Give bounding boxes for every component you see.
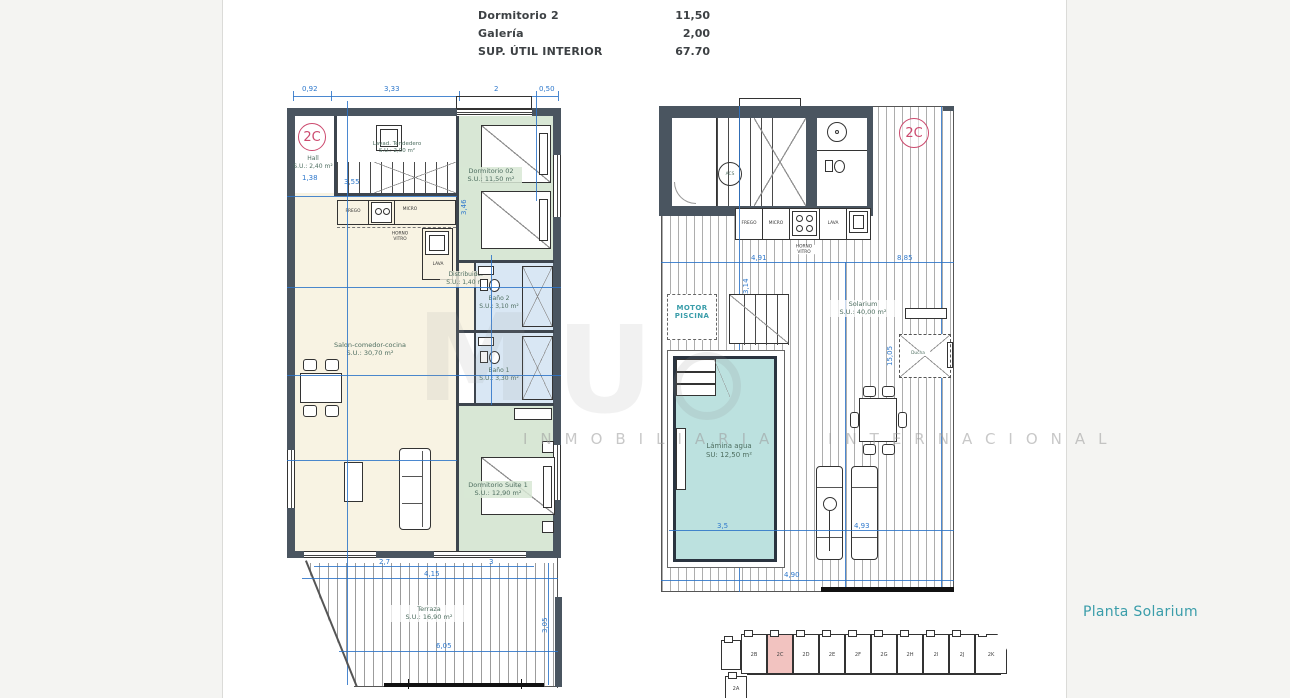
wall-bar: [821, 587, 954, 592]
room-name: Hall: [290, 155, 336, 163]
dimension-line: [661, 580, 954, 581]
solarium-stairs: [729, 294, 789, 344]
counter-divider: [394, 200, 395, 225]
room-area: S.U.: 11,50 m²: [460, 175, 522, 183]
unit-label: 2I: [926, 638, 946, 672]
counter-divider: [789, 208, 790, 240]
shower-head: [827, 122, 847, 142]
sofa-cushion: [402, 476, 422, 477]
oven-door: [429, 235, 445, 251]
wall-segment: [456, 330, 554, 333]
unit-label: 2H: [900, 638, 920, 672]
unit-label: 2G: [874, 638, 894, 672]
pool-step-corner: [714, 359, 730, 397]
basin: [853, 215, 864, 229]
keyplan-edge-cell: [721, 640, 741, 670]
dimension-label: 4,15: [424, 571, 440, 578]
partition: [817, 150, 867, 151]
dimension-tick: [558, 91, 559, 101]
counter-divider: [762, 208, 763, 240]
roof-tab: [456, 96, 532, 109]
pool-step: [676, 372, 716, 384]
pillow: [543, 466, 552, 508]
summary-row: SUP. ÚTIL INTERIOR 67.70: [478, 42, 710, 60]
room-name: Lámina agua: [683, 442, 775, 451]
partition: [716, 118, 717, 206]
parasol: [823, 497, 837, 511]
sun-lounger: [816, 466, 843, 560]
appliance-label: LAVA: [429, 262, 448, 267]
wall-segment: [555, 597, 562, 687]
toilet: [834, 160, 845, 173]
diagonal: [374, 162, 456, 193]
room-name: Solarium: [827, 300, 899, 308]
diagonal: [730, 295, 788, 343]
nightstand: [542, 521, 554, 533]
room-label-solarium: Solarium S.U.: 40,00 m²: [827, 300, 899, 317]
chair: [325, 405, 339, 417]
room-name: Dormitorio Suite 1: [464, 481, 532, 489]
wall-segment: [456, 260, 554, 263]
window: [287, 450, 295, 508]
toilet-tank: [480, 279, 488, 291]
dimension-label: 3,33: [384, 86, 400, 93]
dimension-label: 3: [489, 559, 493, 566]
diagonal: [523, 337, 552, 399]
pool-step: [676, 359, 716, 372]
unit-label: 2K: [978, 638, 1004, 672]
room-name: Dormitorio 02: [460, 167, 522, 175]
keyplan-unit-2E[interactable]: 2E: [819, 634, 845, 674]
summary-label: Dormitorio 2: [478, 9, 648, 22]
dimension-line: [669, 530, 954, 531]
bench: [905, 308, 947, 319]
stair-cross: [754, 118, 806, 206]
label-line: MOTOR: [667, 304, 717, 312]
dimension-label: 2,7: [379, 559, 390, 566]
pool-step: [676, 384, 716, 396]
chair: [863, 386, 876, 397]
appliance-label: LAVA: [824, 221, 843, 226]
lounger-line: [852, 537, 877, 538]
terrace-tick: [521, 679, 522, 689]
dimension-label: 15,05: [887, 346, 894, 366]
counter-divider: [819, 208, 820, 240]
room-name: Salon-comedor-cocina: [332, 341, 408, 349]
appliance-label: MICRO: [767, 221, 786, 226]
bathroom: [817, 118, 867, 206]
unit-label: 2J: [952, 638, 972, 672]
summary-label: Galería: [478, 27, 648, 40]
pool-label: Lámina agua SU: 12,50 m²: [683, 442, 775, 460]
unit-label: 2D: [796, 638, 816, 672]
sink: [849, 211, 868, 233]
pillow: [539, 199, 548, 241]
room-name: Baño 2: [476, 295, 522, 303]
dimension-label: 3,5: [717, 523, 728, 530]
keyplan-unit-2J[interactable]: 2J: [949, 634, 975, 674]
room-label-bano-2: Baño 2 S.U.: 3,10 m²: [476, 295, 522, 311]
toilet-tank: [480, 351, 488, 363]
counter-divider: [846, 208, 847, 240]
dimension-line: [287, 460, 457, 461]
dimension-line: [287, 196, 457, 197]
summary-label: SUP. ÚTIL INTERIOR: [478, 45, 648, 58]
room-area: S.U.: 40,00 m²: [827, 308, 899, 316]
sink: [371, 202, 392, 223]
dimension-label: 8,85: [897, 255, 913, 262]
sliding-door: [304, 551, 376, 558]
summary-value: 67.70: [648, 45, 710, 58]
wall-segment: [287, 108, 457, 116]
room-area: S.U.: 30,70 m²: [332, 349, 408, 357]
keyplan-unit-2G[interactable]: 2G: [871, 634, 897, 674]
unit-badge: 2C: [899, 118, 929, 148]
stair-cross: [374, 162, 456, 193]
pool-motor-label: MOTOR PISCINA: [667, 304, 717, 320]
chair: [303, 359, 317, 371]
room-area: S.U.: 2,00 m²: [362, 148, 432, 155]
basin: [375, 208, 382, 215]
floor-plan-solarium: ACS 2C FREGO MICRO LAVA: [659, 98, 959, 600]
plan-title: Planta Solarium: [1083, 604, 1223, 620]
lounger-line: [817, 487, 842, 488]
counter-divider: [368, 200, 369, 225]
dimension-tick: [331, 91, 332, 101]
diagonal: [714, 359, 730, 397]
sofa-back: [422, 451, 423, 527]
diagonal: [754, 118, 806, 206]
bed: [481, 191, 551, 249]
room-area: S.U.: 16,90 m²: [386, 613, 472, 621]
surface-summary-table: Dormitorio 2 11,50 Galería 2,00 SUP. ÚTI…: [478, 6, 710, 60]
dimension-label: 3,05: [542, 617, 549, 633]
chair: [863, 444, 876, 455]
keyplan-unit-2H[interactable]: 2H: [897, 634, 923, 674]
chair: [325, 359, 339, 371]
appliance-label-horno: HORNO VITRO: [386, 232, 415, 241]
room-area: SU: 12,50 m²: [683, 451, 775, 460]
burner: [796, 215, 803, 222]
burner: [806, 225, 813, 232]
shower: [522, 336, 553, 400]
door-arc: [674, 182, 696, 204]
room-label-salon: Salon-comedor-cocina S.U.: 30,70 m²: [332, 341, 408, 358]
floor-plan-main: 0,92 3,33 2 0,50: [284, 85, 572, 698]
keyplan-unit-2C-active[interactable]: 2C: [767, 634, 793, 674]
summary-value: 2,00: [648, 27, 710, 40]
page-canvas: Dormitorio 2 11,50 Galería 2,00 SUP. ÚTI…: [0, 0, 1290, 698]
unit-label: 2B: [744, 638, 764, 672]
room-label-suite: Dormitorio Suite 1 S.U.: 12,90 m²: [464, 481, 532, 498]
summary-row: Galería 2,00: [478, 24, 710, 42]
diagonal: [900, 335, 950, 377]
keyplan-unit-2F[interactable]: 2F: [845, 634, 871, 674]
unit-label: 2C: [770, 638, 790, 672]
chair: [882, 386, 895, 397]
dimension-label: 4,93: [854, 523, 870, 530]
window: [457, 109, 532, 115]
room-area: S.U.: 3,10 m²: [476, 303, 522, 311]
dimension-label: 4,91: [751, 255, 767, 262]
room-label-hall: Hall S.U.: 2,40 m²: [290, 155, 336, 171]
parasol-pole: [829, 511, 830, 551]
chair: [882, 444, 895, 455]
table: [859, 398, 897, 442]
dimension-line: [287, 375, 561, 376]
chair: [850, 412, 859, 428]
shower-fitting: [947, 342, 953, 368]
room-area: S.U.: 12,90 m²: [464, 489, 532, 497]
dimension-tick: [293, 91, 294, 101]
unit-label: 2E: [822, 638, 842, 672]
shower-label: Ducha: [906, 351, 930, 356]
toilet-tank: [825, 160, 833, 172]
unit-key-plan: 2B 2C 2D 2E 2F 2G 2H 2I 2J 2K 2A: [713, 626, 1005, 698]
lounger-line: [852, 487, 877, 488]
keyplan-unit-2K[interactable]: 2K: [975, 634, 1007, 674]
dimension-line: [491, 255, 492, 405]
room-label-terraza: Terraza S.U.: 16,90 m²: [386, 605, 472, 622]
cooktop: [792, 211, 817, 236]
oven: [425, 231, 449, 255]
keyplan-unit-2B[interactable]: 2B: [741, 634, 767, 674]
shower-drain: [835, 130, 839, 134]
wall-segment: [943, 106, 954, 111]
pillow: [539, 133, 548, 175]
summary-row: Dormitorio 2 11,50: [478, 6, 710, 24]
dimension-label: 3,14: [743, 278, 750, 294]
room-name: Baño 1: [476, 367, 522, 375]
shower: [522, 266, 553, 327]
keyplan-unit-2D[interactable]: 2D: [793, 634, 819, 674]
dimension-label: 2: [494, 86, 498, 93]
sun-lounger: [851, 466, 878, 560]
unit-label: 2F: [848, 638, 868, 672]
dimension-line: [536, 101, 537, 201]
summary-value: 11,50: [648, 9, 710, 22]
appliance-label: FREGO: [740, 221, 759, 226]
dimension-label: 4,90: [784, 572, 800, 579]
dimension-line: [302, 578, 558, 579]
keyplan-unit-2I[interactable]: 2I: [923, 634, 949, 674]
wardrobe: [514, 408, 552, 420]
diagonal: [523, 267, 552, 326]
dimension-label: 1,38: [302, 175, 318, 182]
appliance-label-horno: HORNO VITRO: [792, 245, 816, 254]
unit-badge: 2C: [298, 123, 326, 151]
window: [553, 155, 561, 217]
basin: [383, 208, 390, 215]
water-heater-label: ACS: [721, 172, 738, 177]
wall-segment: [456, 403, 554, 406]
dimension-line: [339, 651, 558, 652]
appliance-label: VITRO: [797, 249, 810, 254]
dimension-line: [314, 566, 534, 567]
sofa-cushion: [402, 503, 422, 504]
room-label-lavadero: Lavad. Tendedero S.U.: 2,00 m²: [362, 141, 432, 155]
unit-label: 2A: [728, 679, 745, 698]
burner: [796, 225, 803, 232]
wall-segment: [456, 116, 459, 551]
keyplan-unit-2A[interactable]: 2A: [725, 676, 747, 698]
document-page: Dormitorio 2 11,50 Galería 2,00 SUP. ÚTI…: [222, 0, 1067, 698]
dining-table: [300, 373, 342, 403]
dimension-line: [287, 287, 561, 288]
room-area: S.U.: 2,40 m²: [290, 163, 336, 171]
dimension-label: 0,50: [539, 86, 555, 93]
dimension-label: 3,46: [461, 199, 468, 215]
dimension-tick: [536, 91, 537, 101]
appliance-label: MICRO: [401, 207, 420, 212]
appliance-label: VITRO: [393, 236, 406, 241]
room-name: Terraza: [386, 605, 472, 613]
room-label-dormitorio-02: Dormitorio 02 S.U.: 11,50 m²: [460, 167, 522, 184]
label-line: PISCINA: [667, 312, 717, 320]
dimension-label: 6,05: [436, 643, 452, 650]
nightstand: [542, 441, 554, 453]
dimension-line: [661, 262, 954, 263]
chair: [303, 405, 317, 417]
keyplan-baseline: [747, 674, 1001, 675]
sliding-door: [434, 551, 526, 558]
burner: [806, 215, 813, 222]
shower-area: [899, 334, 951, 378]
chair: [898, 412, 907, 428]
dimension-label: 0,92: [302, 86, 318, 93]
terrace-tick: [408, 679, 409, 689]
